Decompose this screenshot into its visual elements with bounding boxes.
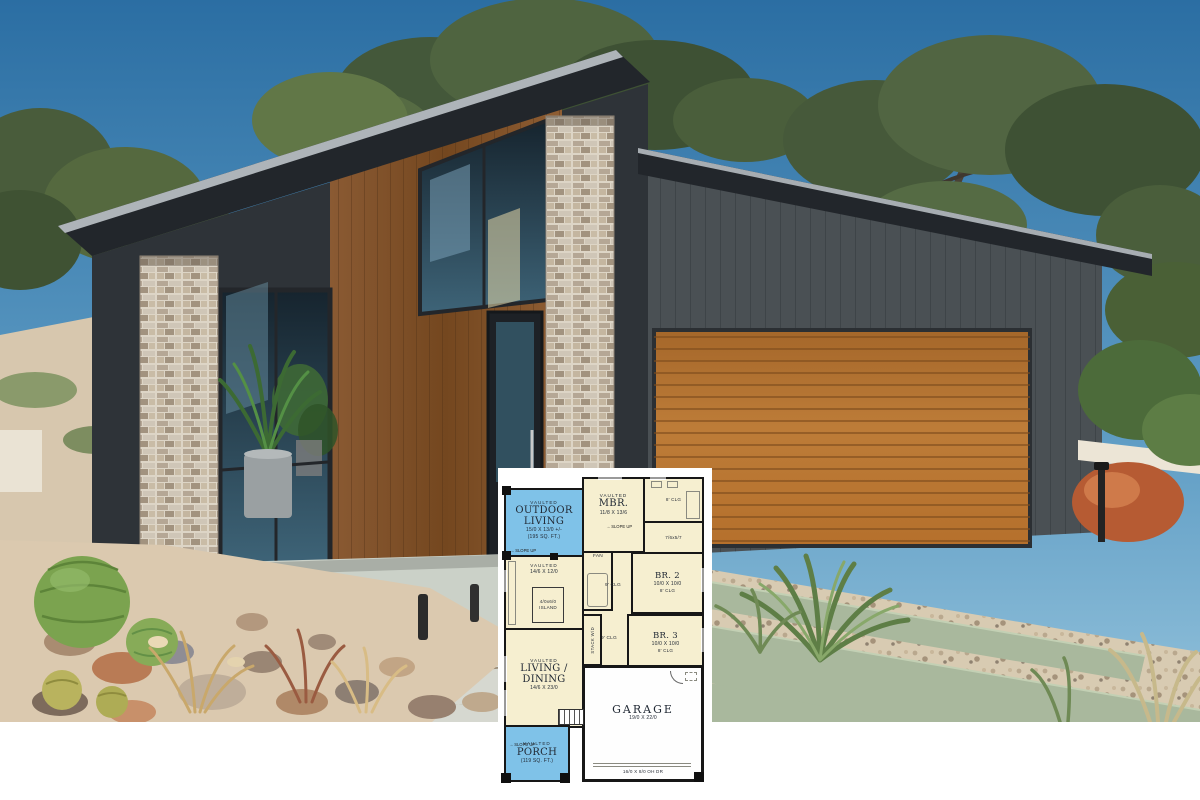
room-name: BR. 3 [653, 632, 678, 641]
post [550, 553, 558, 560]
window-opening [503, 690, 507, 716]
water-heater-fixture [685, 672, 697, 681]
room-name: PORCH [517, 748, 557, 758]
fan-label: FAN [586, 554, 610, 559]
hall-ceiling-label: 9' CLG [598, 583, 628, 588]
window-opening [503, 656, 507, 682]
post [560, 773, 570, 783]
sink-fixture [667, 481, 678, 488]
ceiling-label: 8' CLG [666, 497, 681, 503]
room-dims: 14/6 X 12/0 [530, 569, 558, 577]
window-opening [650, 476, 666, 480]
door-swing-arc [670, 671, 683, 684]
island-label: 4/0x6/0 ISLAND [535, 599, 561, 611]
ceiling-label: 8' CLG [658, 648, 673, 654]
window-opening [598, 476, 622, 480]
sink-fixture [651, 481, 662, 488]
slope-up-arrow-icon: → [606, 525, 610, 529]
tub-fixture [587, 573, 608, 607]
window-opening [503, 570, 507, 592]
room-area: (119 SQ. FT.) [521, 758, 553, 766]
floorplan-inset: VAULTED OUTDOOR LIVING 15/0 X 13/0 +/- (… [498, 468, 712, 795]
counter-fixture [508, 561, 516, 625]
laundry-label: STACK W/D [590, 627, 595, 654]
room-dims: 19/0 X 22/0 [629, 715, 657, 723]
room-wic: 7/6x5/7 [643, 521, 704, 554]
room-name: BR. 2 [655, 572, 680, 581]
room-dims: 10/0 X 10/0 [654, 581, 682, 589]
room-laundry: STACK W/D [582, 614, 602, 666]
post [502, 486, 511, 495]
white-planter-wall [0, 430, 42, 492]
stone-pillar-left [140, 256, 218, 572]
post [502, 551, 511, 560]
post [694, 772, 704, 782]
room-name: LIVING / DINING [513, 664, 575, 684]
room-br3: BR. 3 10/0 X 10/0 8' CLG [627, 614, 704, 672]
page: VAULTED OUTDOOR LIVING 15/0 X 13/0 +/- (… [0, 0, 1200, 800]
wic-dims: 7/6x5/7 [665, 535, 681, 541]
room-br2: BR. 2 10/0 X 10/0 8' CLG [631, 552, 704, 614]
overhead-door-line [593, 763, 691, 767]
room-outdoor-living: VAULTED OUTDOOR LIVING 15/0 X 13/0 +/- (… [504, 488, 584, 558]
garage-door-label: 16/0 X 8/0 OH DR [595, 769, 691, 775]
slope-label: → SLOPE UP [509, 743, 535, 747]
room-name: GARAGE [612, 704, 674, 715]
window-opening [701, 628, 705, 652]
slope-label: → SLOPE UP [510, 549, 536, 553]
room-mbr: VAULTED MBR. 11/8 X 13/6 → SLOPE UP [582, 477, 645, 553]
room-dims: 14/6 X 23/0 [530, 685, 558, 693]
window-opening [701, 568, 705, 592]
room-name: MBR. [599, 499, 629, 509]
room-dims: 10/0 X 10/0 [652, 641, 680, 649]
ceiling-label: 8' CLG [660, 588, 675, 594]
room-garage: GARAGE 19/0 X 22/0 16/0 X 8/0 OH DR [582, 665, 704, 782]
room-master-bath: 8' CLG [643, 477, 704, 523]
entry-steps [558, 709, 584, 725]
slope-label: → SLOPE UP [606, 525, 632, 529]
shower-fixture [686, 491, 700, 519]
room-name: OUTDOOR LIVING [510, 506, 578, 526]
kitchen-island: 4/0x6/0 ISLAND [532, 587, 564, 623]
post [501, 773, 511, 783]
room-dims: 11/8 X 13/6 [600, 510, 627, 518]
room-dims: 15/0 X 13/0 +/- [526, 527, 562, 535]
room-area: (195 SQ. FT.) [528, 534, 561, 542]
slope-up-arrow-icon: → [509, 743, 513, 747]
room-kitchen: VAULTED 14/6 X 12/0 4/0x6/0 ISLAND [504, 555, 584, 630]
room-bath2 [582, 551, 613, 611]
